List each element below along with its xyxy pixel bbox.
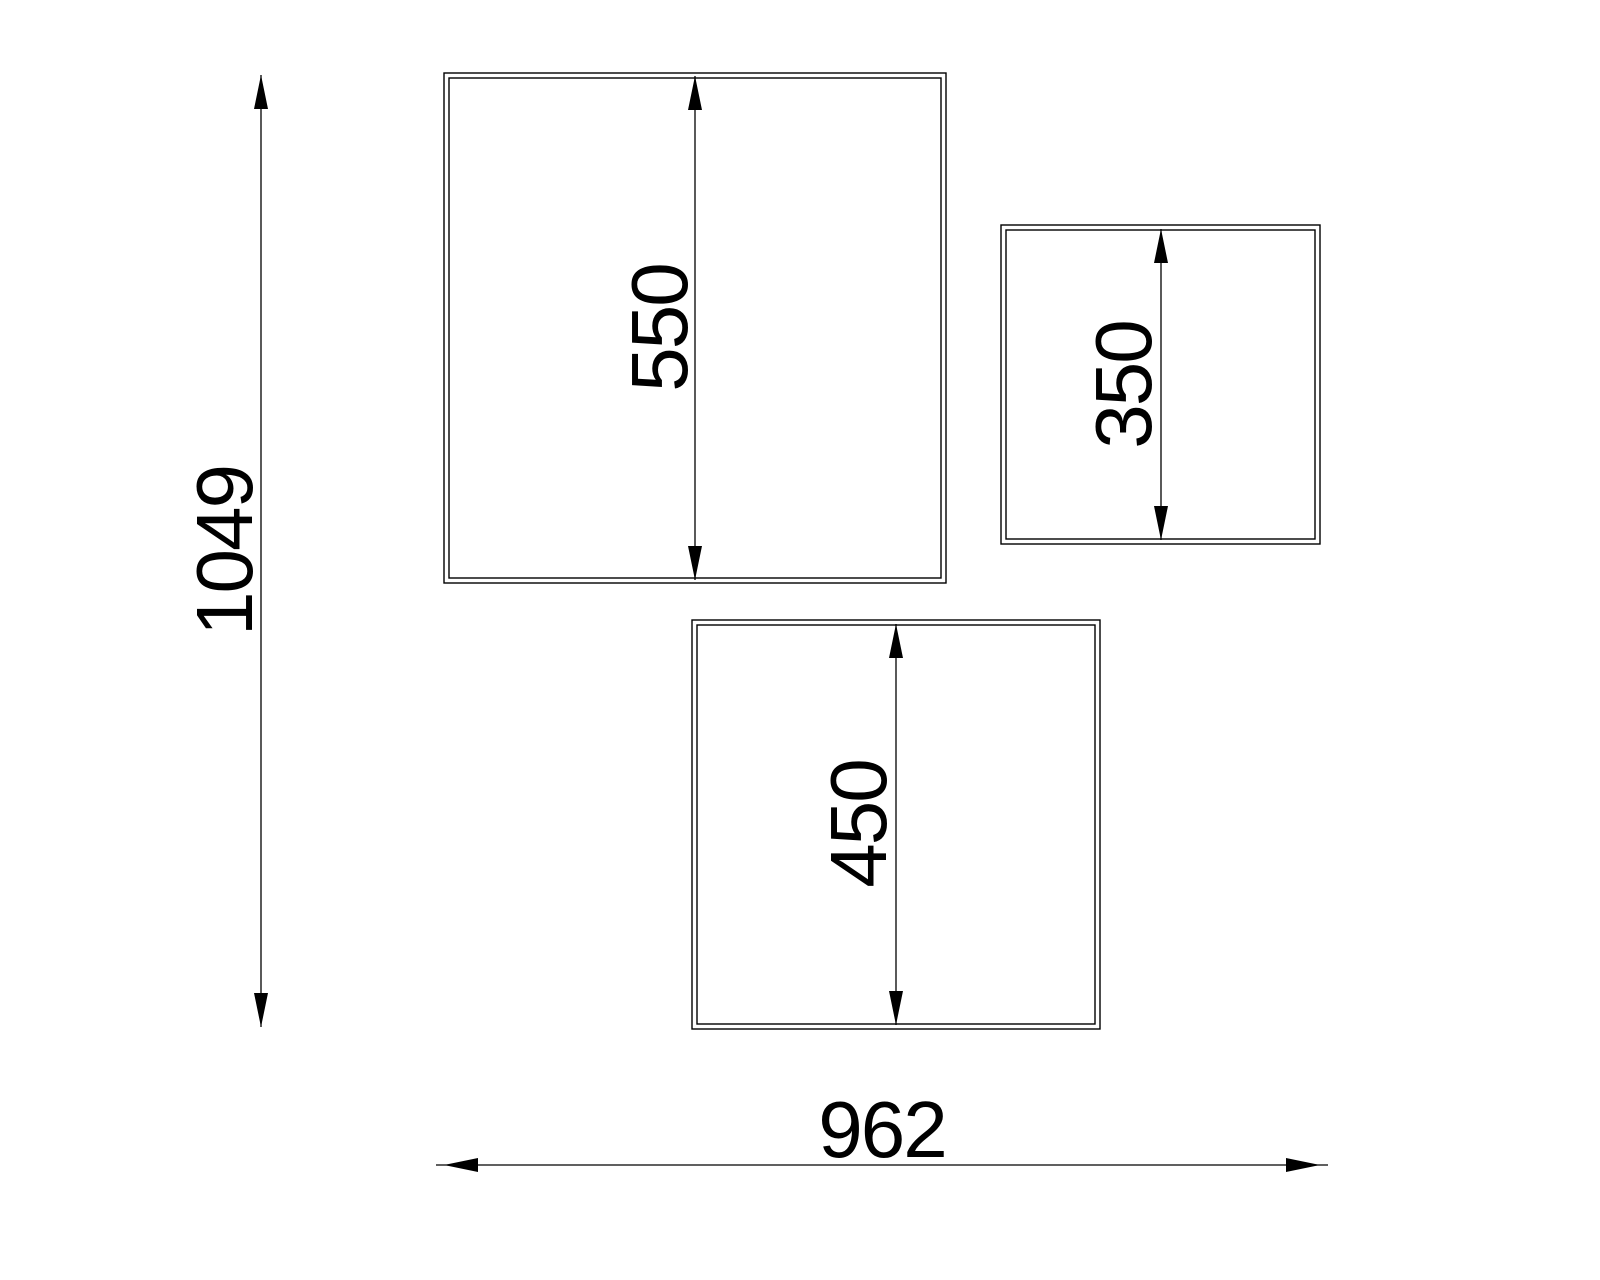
arrow-down-icon <box>889 991 903 1025</box>
overall-height-dimension: 1049 <box>180 75 269 1027</box>
large-panel: 550 <box>444 73 946 583</box>
small-panel-height-dimension: 350 <box>1079 229 1168 540</box>
overall-width-dimension: 962 <box>436 1085 1328 1174</box>
medium-panel: 450 <box>692 620 1100 1029</box>
arrow-down-icon <box>1154 506 1168 540</box>
dimension-label-1049: 1049 <box>180 466 269 636</box>
arrow-right-icon <box>1286 1158 1320 1172</box>
medium-panel-height-dimension: 450 <box>814 624 903 1025</box>
panel-dimension-drawing: 550 350 450 <box>0 0 1600 1280</box>
dimension-label-962: 962 <box>818 1085 945 1174</box>
arrow-up-icon <box>688 76 702 110</box>
cad-drawing-canvas: 550 350 450 <box>0 0 1600 1280</box>
arrow-down-icon <box>688 546 702 580</box>
arrow-up-icon <box>889 624 903 658</box>
arrow-down-icon <box>254 993 268 1027</box>
arrow-left-icon <box>444 1158 478 1172</box>
large-panel-height-dimension: 550 <box>615 76 704 580</box>
dimension-label-350: 350 <box>1079 321 1168 448</box>
dimension-label-450: 450 <box>814 760 903 887</box>
arrow-up-icon <box>1154 229 1168 263</box>
small-panel: 350 <box>1001 225 1320 544</box>
dimension-label-550: 550 <box>615 264 704 391</box>
arrow-up-icon <box>254 75 268 109</box>
